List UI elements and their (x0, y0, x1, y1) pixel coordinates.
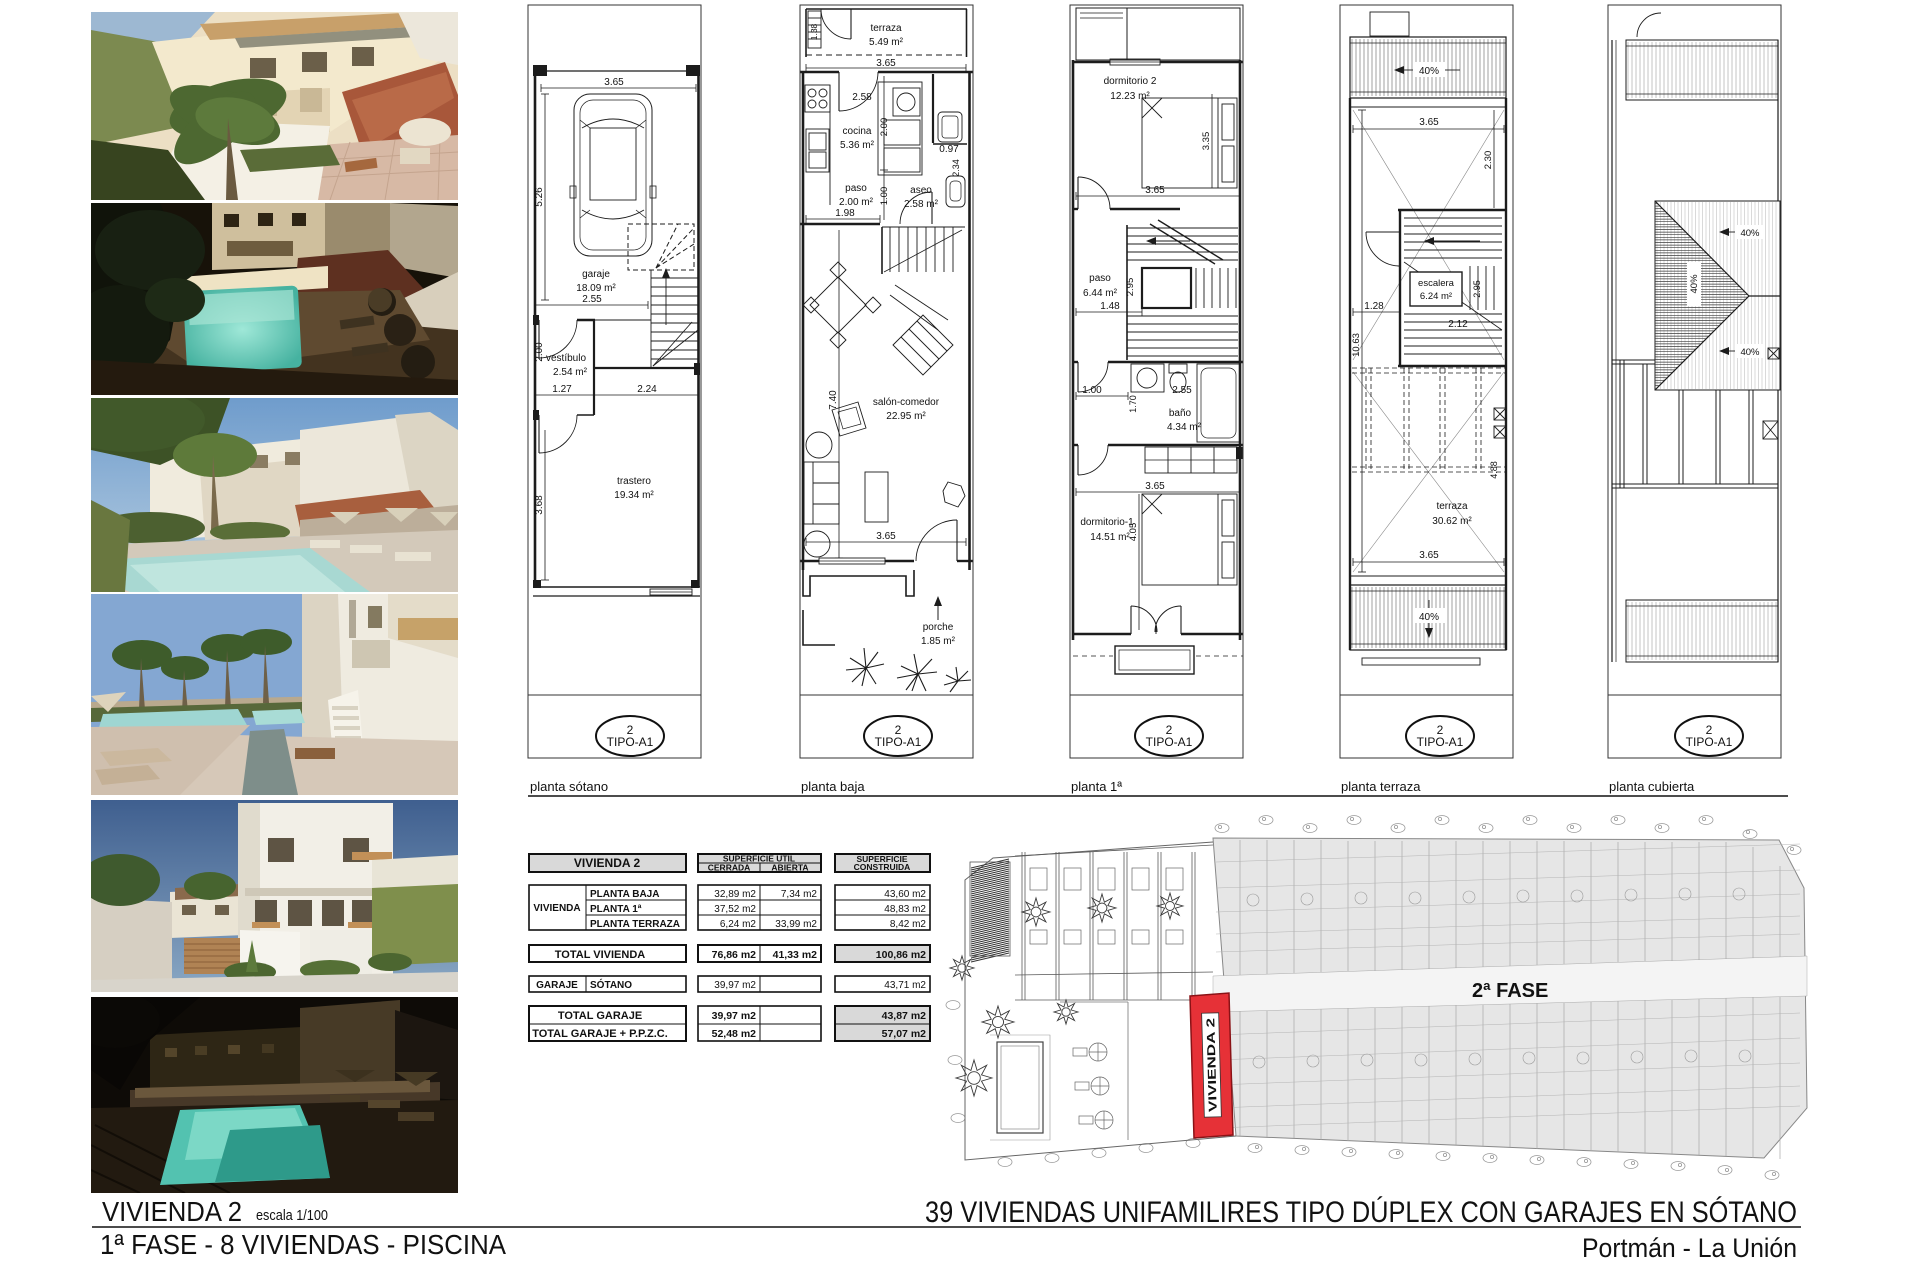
svg-text:6.24 m²: 6.24 m² (1420, 291, 1452, 302)
svg-text:1.48: 1.48 (1100, 301, 1120, 312)
svg-text:57,07 m2: 57,07 m2 (882, 1028, 927, 1040)
svg-text:14.51 m²: 14.51 m² (1090, 532, 1130, 543)
svg-text:6.44 m²: 6.44 m² (1083, 288, 1118, 299)
svg-text:planta terraza: planta terraza (1341, 779, 1421, 794)
svg-text:40%: 40% (1419, 612, 1439, 623)
svg-text:salón-comedor: salón-comedor (873, 397, 940, 408)
svg-text:3.65: 3.65 (604, 77, 624, 88)
svg-text:terraza: terraza (870, 23, 902, 34)
svg-text:PLANTA TERRAZA: PLANTA TERRAZA (590, 919, 680, 930)
svg-text:2.55: 2.55 (582, 294, 602, 305)
svg-text:1ª FASE - 8 VIVIENDAS - PISCIN: 1ª FASE - 8 VIVIENDAS - PISCINA (100, 1229, 506, 1260)
svg-text:TOTAL VIVIENDA: TOTAL VIVIENDA (555, 949, 646, 961)
svg-text:planta cubierta: planta cubierta (1609, 779, 1695, 794)
svg-text:TIPO-A1: TIPO-A1 (1417, 735, 1464, 749)
svg-text:2.12: 2.12 (1448, 319, 1468, 330)
svg-text:43,71 m2: 43,71 m2 (884, 980, 926, 991)
svg-text:2.55: 2.55 (1172, 385, 1192, 396)
svg-text:2.95: 2.95 (1125, 278, 1136, 297)
svg-text:CONSTRUIDA: CONSTRUIDA (854, 862, 911, 872)
svg-text:6,24 m2: 6,24 m2 (720, 919, 757, 930)
svg-text:3.65: 3.65 (1419, 550, 1439, 561)
svg-text:1.00: 1.00 (1082, 385, 1102, 396)
svg-text:vestíbulo: vestíbulo (546, 353, 586, 364)
svg-text:VIVIENDA 2: VIVIENDA 2 (574, 856, 641, 870)
svg-text:baño: baño (1169, 408, 1192, 419)
svg-text:3.35: 3.35 (1201, 132, 1212, 151)
svg-text:TIPO-A1: TIPO-A1 (1146, 735, 1193, 749)
svg-text:2.00: 2.00 (879, 118, 890, 137)
svg-text:39 VIVIENDAS UNIFAMILIRES TIPO: 39 VIVIENDAS UNIFAMILIRES TIPO DÚPLEX CO… (925, 1196, 1797, 1229)
svg-text:porche: porche (923, 622, 954, 633)
svg-text:planta sótano: planta sótano (530, 779, 608, 794)
svg-text:paso: paso (1089, 273, 1111, 284)
svg-text:1.00: 1.00 (879, 187, 890, 206)
svg-text:40%: 40% (1740, 347, 1760, 358)
svg-text:40%: 40% (1740, 228, 1760, 239)
svg-text:39,97 m2: 39,97 m2 (712, 1010, 757, 1022)
svg-text:PLANTA 1ª: PLANTA 1ª (590, 904, 642, 915)
svg-text:22.95 m²: 22.95 m² (886, 411, 926, 422)
svg-text:40%: 40% (1419, 66, 1439, 77)
svg-text:32,89 m2: 32,89 m2 (714, 889, 756, 900)
svg-text:5.26: 5.26 (534, 187, 545, 207)
svg-text:dormitorio 2: dormitorio 2 (1104, 76, 1157, 87)
svg-text:1.85 m²: 1.85 m² (921, 636, 956, 647)
svg-text:TIPO-A1: TIPO-A1 (1686, 735, 1733, 749)
svg-text:2.58 m²: 2.58 m² (904, 199, 939, 210)
svg-text:40%: 40% (1689, 274, 1700, 294)
svg-text:2.54 m²: 2.54 m² (553, 367, 588, 378)
svg-text:TIPO-A1: TIPO-A1 (875, 735, 922, 749)
svg-text:trastero: trastero (617, 476, 651, 487)
svg-text:CERRADA: CERRADA (708, 863, 751, 873)
svg-text:48,83 m2: 48,83 m2 (884, 904, 926, 915)
svg-text:33,99 m2: 33,99 m2 (775, 919, 817, 930)
svg-text:10.63: 10.63 (1351, 333, 1362, 357)
svg-text:2.24: 2.24 (637, 384, 657, 395)
svg-text:8,42 m2: 8,42 m2 (890, 919, 927, 930)
svg-text:18.09 m²: 18.09 m² (576, 283, 616, 294)
svg-text:VIVIENDA 2: VIVIENDA 2 (102, 1196, 242, 1227)
svg-text:19.34 m²: 19.34 m² (614, 490, 654, 501)
svg-text:100,86 m2: 100,86 m2 (876, 949, 926, 961)
svg-text:garaje: garaje (582, 269, 610, 280)
svg-text:1.70: 1.70 (1128, 395, 1138, 413)
svg-text:VIVIENDA: VIVIENDA (533, 903, 580, 914)
svg-text:TIPO-A1: TIPO-A1 (607, 735, 654, 749)
svg-text:GARAJE: GARAJE (536, 980, 578, 991)
svg-text:7.40: 7.40 (828, 390, 839, 410)
svg-text:ABIERTA: ABIERTA (771, 863, 808, 873)
svg-text:43,60 m2: 43,60 m2 (884, 889, 926, 900)
svg-text:TOTAL GARAJE: TOTAL GARAJE (558, 1010, 642, 1022)
svg-text:Portmán - La Unión: Portmán - La Unión (1582, 1233, 1797, 1263)
svg-text:4.05: 4.05 (1128, 523, 1139, 542)
svg-text:30.62 m²: 30.62 m² (1432, 516, 1472, 527)
svg-text:dormitorio-1: dormitorio-1 (1080, 517, 1134, 528)
svg-text:2.34: 2.34 (951, 159, 961, 177)
svg-text:VIVIENDA 2: VIVIENDA 2 (1205, 1018, 1219, 1112)
svg-text:aseo: aseo (910, 185, 932, 196)
svg-text:terraza: terraza (1436, 501, 1468, 512)
svg-text:2.58: 2.58 (852, 92, 872, 103)
svg-text:4.34 m²: 4.34 m² (1167, 422, 1202, 433)
svg-text:2.30: 2.30 (1483, 151, 1494, 170)
svg-text:52,48 m2: 52,48 m2 (712, 1028, 757, 1040)
svg-text:4.88: 4.88 (1489, 461, 1499, 479)
svg-text:3.65: 3.65 (876, 531, 896, 542)
svg-text:0.97: 0.97 (939, 144, 959, 155)
svg-text:43,87 m2: 43,87 m2 (882, 1010, 927, 1022)
svg-text:3.65: 3.65 (1419, 117, 1439, 128)
svg-text:76,86 m2: 76,86 m2 (712, 949, 757, 961)
svg-text:5.49 m²: 5.49 m² (869, 37, 904, 48)
svg-text:SÓTANO: SÓTANO (590, 978, 632, 991)
svg-text:cocina: cocina (843, 126, 872, 137)
svg-text:1.38: 1.38 (809, 23, 819, 40)
svg-text:PLANTA BAJA: PLANTA BAJA (590, 889, 659, 900)
svg-text:planta 1ª: planta 1ª (1071, 779, 1122, 794)
svg-text:2.00: 2.00 (534, 342, 545, 362)
svg-text:41,33 m2: 41,33 m2 (773, 949, 818, 961)
svg-text:3.65: 3.65 (1145, 481, 1165, 492)
svg-text:escalera: escalera (1418, 278, 1455, 289)
svg-text:2ª FASE: 2ª FASE (1472, 980, 1548, 1002)
svg-text:7,34 m2: 7,34 m2 (781, 889, 818, 900)
svg-text:5.36 m²: 5.36 m² (840, 140, 875, 151)
svg-text:TOTAL GARAJE + P.P.Z.C.: TOTAL GARAJE + P.P.Z.C. (532, 1028, 668, 1040)
svg-text:3.65: 3.65 (1145, 185, 1165, 196)
svg-text:37,52 m2: 37,52 m2 (714, 904, 756, 915)
svg-text:39,97 m2: 39,97 m2 (714, 980, 756, 991)
svg-text:1.27: 1.27 (552, 384, 572, 395)
svg-text:escala 1/100: escala 1/100 (256, 1207, 328, 1224)
svg-text:3.65: 3.65 (876, 58, 896, 69)
svg-text:1.98: 1.98 (835, 208, 855, 219)
svg-text:paso: paso (845, 183, 867, 194)
svg-text:1.28: 1.28 (1364, 301, 1384, 312)
svg-text:2.00 m²: 2.00 m² (839, 197, 874, 208)
svg-text:3.68: 3.68 (534, 495, 545, 515)
svg-text:2.95: 2.95 (1472, 280, 1482, 298)
svg-text:planta baja: planta baja (801, 779, 865, 794)
